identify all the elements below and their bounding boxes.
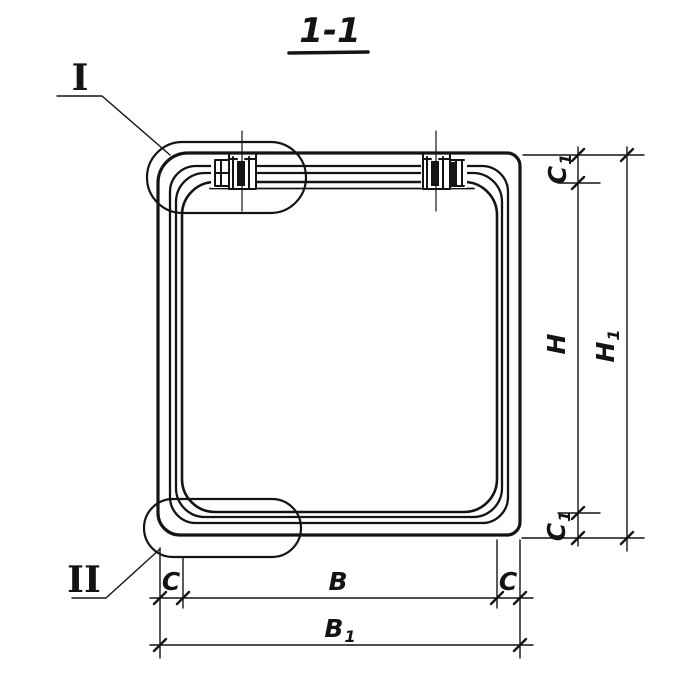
- dim-label-b1-base: B: [324, 614, 343, 643]
- dim-label-b1-sub: 1: [344, 627, 355, 646]
- wall-layer-line-1: [170, 166, 508, 523]
- detail-region-2: II: [67, 499, 301, 601]
- dim-label-c1-bottom-base: C: [542, 522, 571, 541]
- dim-label-c1-top-sub: 1: [556, 154, 575, 165]
- joint-right-anchor-bar-2: [450, 162, 456, 185]
- detail-region-1: I: [57, 57, 306, 213]
- section-title: 1-1: [299, 11, 360, 51]
- dim-label-c-left: C: [162, 567, 181, 596]
- dim-label-h1-base: H: [591, 342, 620, 363]
- detail-2-boundary: [144, 499, 301, 557]
- dim-label-c1-top-base: C: [543, 165, 572, 184]
- dim-label-c1-bottom-sub: 1: [555, 511, 574, 522]
- detail-1-leader-line: [57, 96, 170, 155]
- detail-2-label: II: [67, 559, 101, 601]
- dimension-chain-right: C1 H C1 H1: [522, 147, 644, 551]
- dim-label-c-right: C: [499, 567, 518, 596]
- dim-label-h1-sub: 1: [604, 329, 623, 340]
- dim-label-b: B: [328, 567, 347, 596]
- section-title-block: 1-1: [289, 11, 368, 53]
- dim-label-c1-top: C1: [543, 154, 575, 185]
- top-joint-right: [421, 131, 467, 211]
- joint-left-anchor-bar: [237, 161, 245, 186]
- dim-label-h1: H1: [591, 329, 623, 362]
- drawing-sheet: 1-1 I II: [0, 0, 700, 700]
- inner-opening-contour: [182, 182, 497, 512]
- detail-1-label: I: [72, 57, 89, 99]
- outer-contour: [158, 153, 520, 535]
- wall-layer-line-2: [176, 173, 502, 517]
- joint-right-anchor-bar: [431, 161, 439, 186]
- section-drawing-canvas: 1-1 I II: [0, 0, 700, 700]
- dim-label-c1-bottom: C1: [542, 511, 574, 542]
- section-body: [158, 153, 520, 535]
- dim-label-h: H: [542, 333, 571, 354]
- title-underline: [289, 52, 368, 53]
- dim-label-b1: B1: [324, 614, 355, 646]
